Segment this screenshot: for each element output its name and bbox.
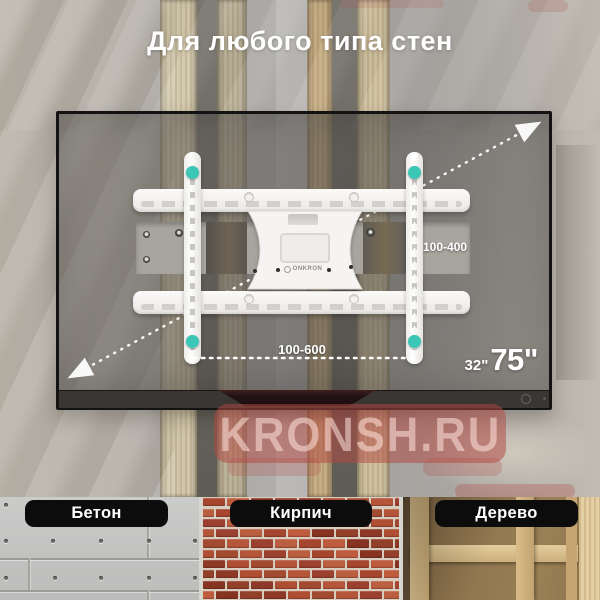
rivet-icon [244, 192, 254, 202]
watermark-fragment [455, 484, 575, 498]
wall-label-concrete: Бетон [25, 500, 168, 527]
mount-arm-recess-left [206, 222, 247, 274]
watermark-badge: KRONSH.RU [214, 404, 506, 463]
rail-holes [190, 166, 195, 350]
wall-label-wood: Дерево [435, 500, 578, 527]
screw-icon [143, 231, 150, 238]
tv-size-range: 32" 75" [430, 342, 538, 376]
screw-hole [327, 268, 331, 272]
tv-logo-icon [521, 394, 531, 404]
screw-icon [143, 256, 150, 263]
rail-holes [412, 166, 417, 350]
tv-power-led [543, 397, 546, 400]
mount-right-rail [406, 152, 423, 364]
watermark-fragment [423, 458, 502, 476]
teal-cap-icon [186, 335, 199, 348]
wall-shade [556, 145, 600, 380]
tv-size-min-label: 32" [465, 357, 489, 374]
teal-cap-icon [186, 166, 199, 179]
onkron-brand-label: ONKRON [293, 266, 323, 272]
screw-icon [366, 228, 375, 237]
screw-hole [349, 265, 353, 269]
wall-label-brick: Кирпич [230, 500, 372, 527]
height-range-label: 100-400 [423, 240, 467, 254]
rivet-icon [349, 192, 359, 202]
rivet-icon [244, 294, 254, 304]
panel-divider [199, 497, 203, 600]
watermark-fragment [340, 0, 444, 8]
onkron-brand: ONKRON [281, 264, 325, 274]
tv-size-max-label: 75" [490, 342, 538, 378]
screw-icon [175, 229, 183, 237]
watermark-text: KRONSH.RU [219, 405, 501, 462]
vesa-plate-window [280, 233, 330, 263]
rivet-icon [349, 294, 359, 304]
watermark-fragment [228, 458, 321, 476]
mount-left-rail [184, 152, 201, 364]
vesa-plate-handle [288, 214, 318, 225]
product-banner: Для любого типа стен ONKRON [0, 0, 600, 600]
panel-divider [399, 497, 403, 600]
teal-cap-icon [408, 166, 421, 179]
screw-hole [276, 268, 280, 272]
watermark-fragment [528, 0, 568, 12]
teal-cap-icon [408, 335, 421, 348]
onkron-logo-icon [284, 266, 291, 273]
screw-hole [253, 269, 257, 273]
page-title: Для любого типа стен [0, 26, 600, 57]
width-range-label: 100-600 [262, 342, 342, 357]
